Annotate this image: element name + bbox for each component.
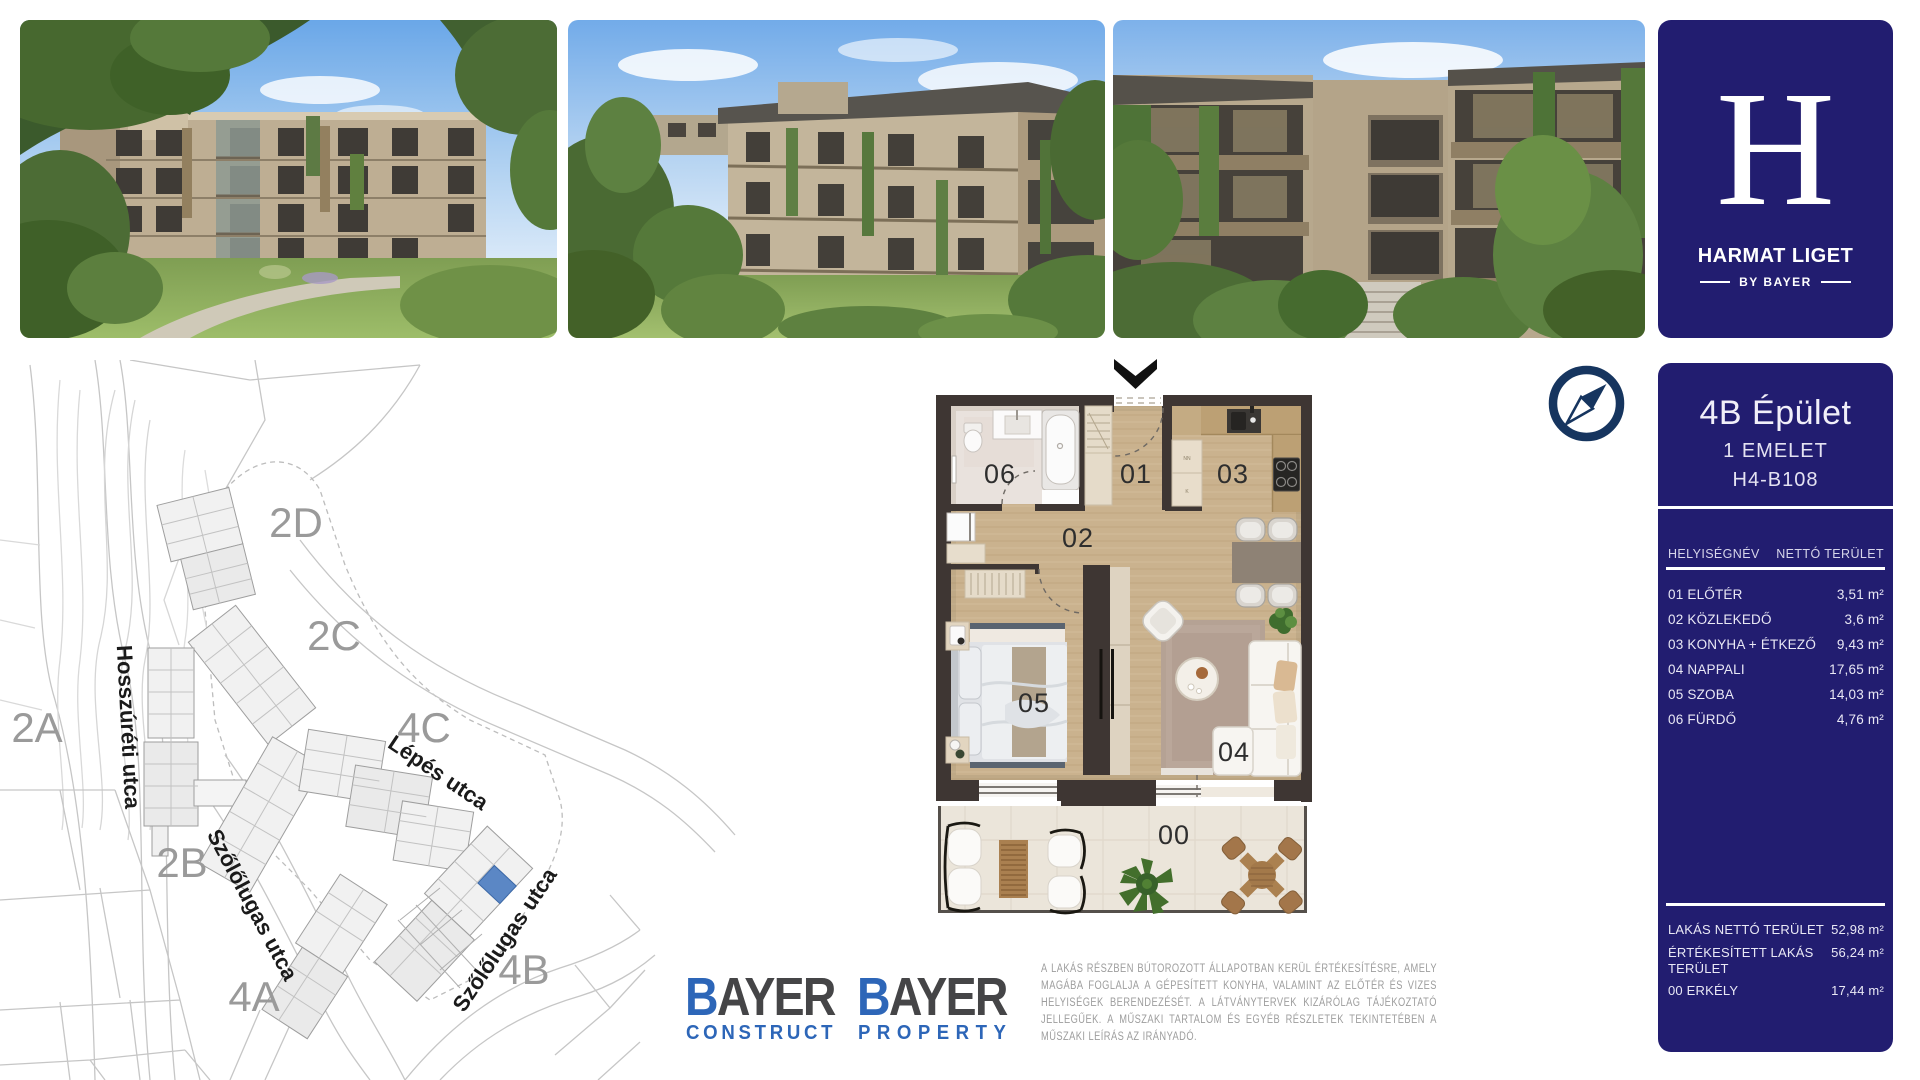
svg-text:2A: 2A: [11, 704, 62, 751]
svg-text:00: 00: [1158, 820, 1190, 850]
svg-text:05: 05: [1018, 688, 1050, 718]
svg-text:03: 03: [1217, 459, 1249, 489]
svg-text:4A: 4A: [228, 973, 279, 1020]
svg-text:2B: 2B: [156, 839, 207, 886]
svg-text:Hosszúréti utca: Hosszúréti utca: [112, 645, 146, 811]
svg-text:06: 06: [984, 459, 1016, 489]
svg-text:2D: 2D: [269, 499, 323, 546]
svg-text:01: 01: [1120, 459, 1152, 489]
svg-text:2C: 2C: [307, 612, 361, 659]
svg-text:02: 02: [1062, 523, 1094, 553]
svg-text:04: 04: [1218, 737, 1250, 767]
svg-text:NN: NN: [1183, 456, 1191, 462]
